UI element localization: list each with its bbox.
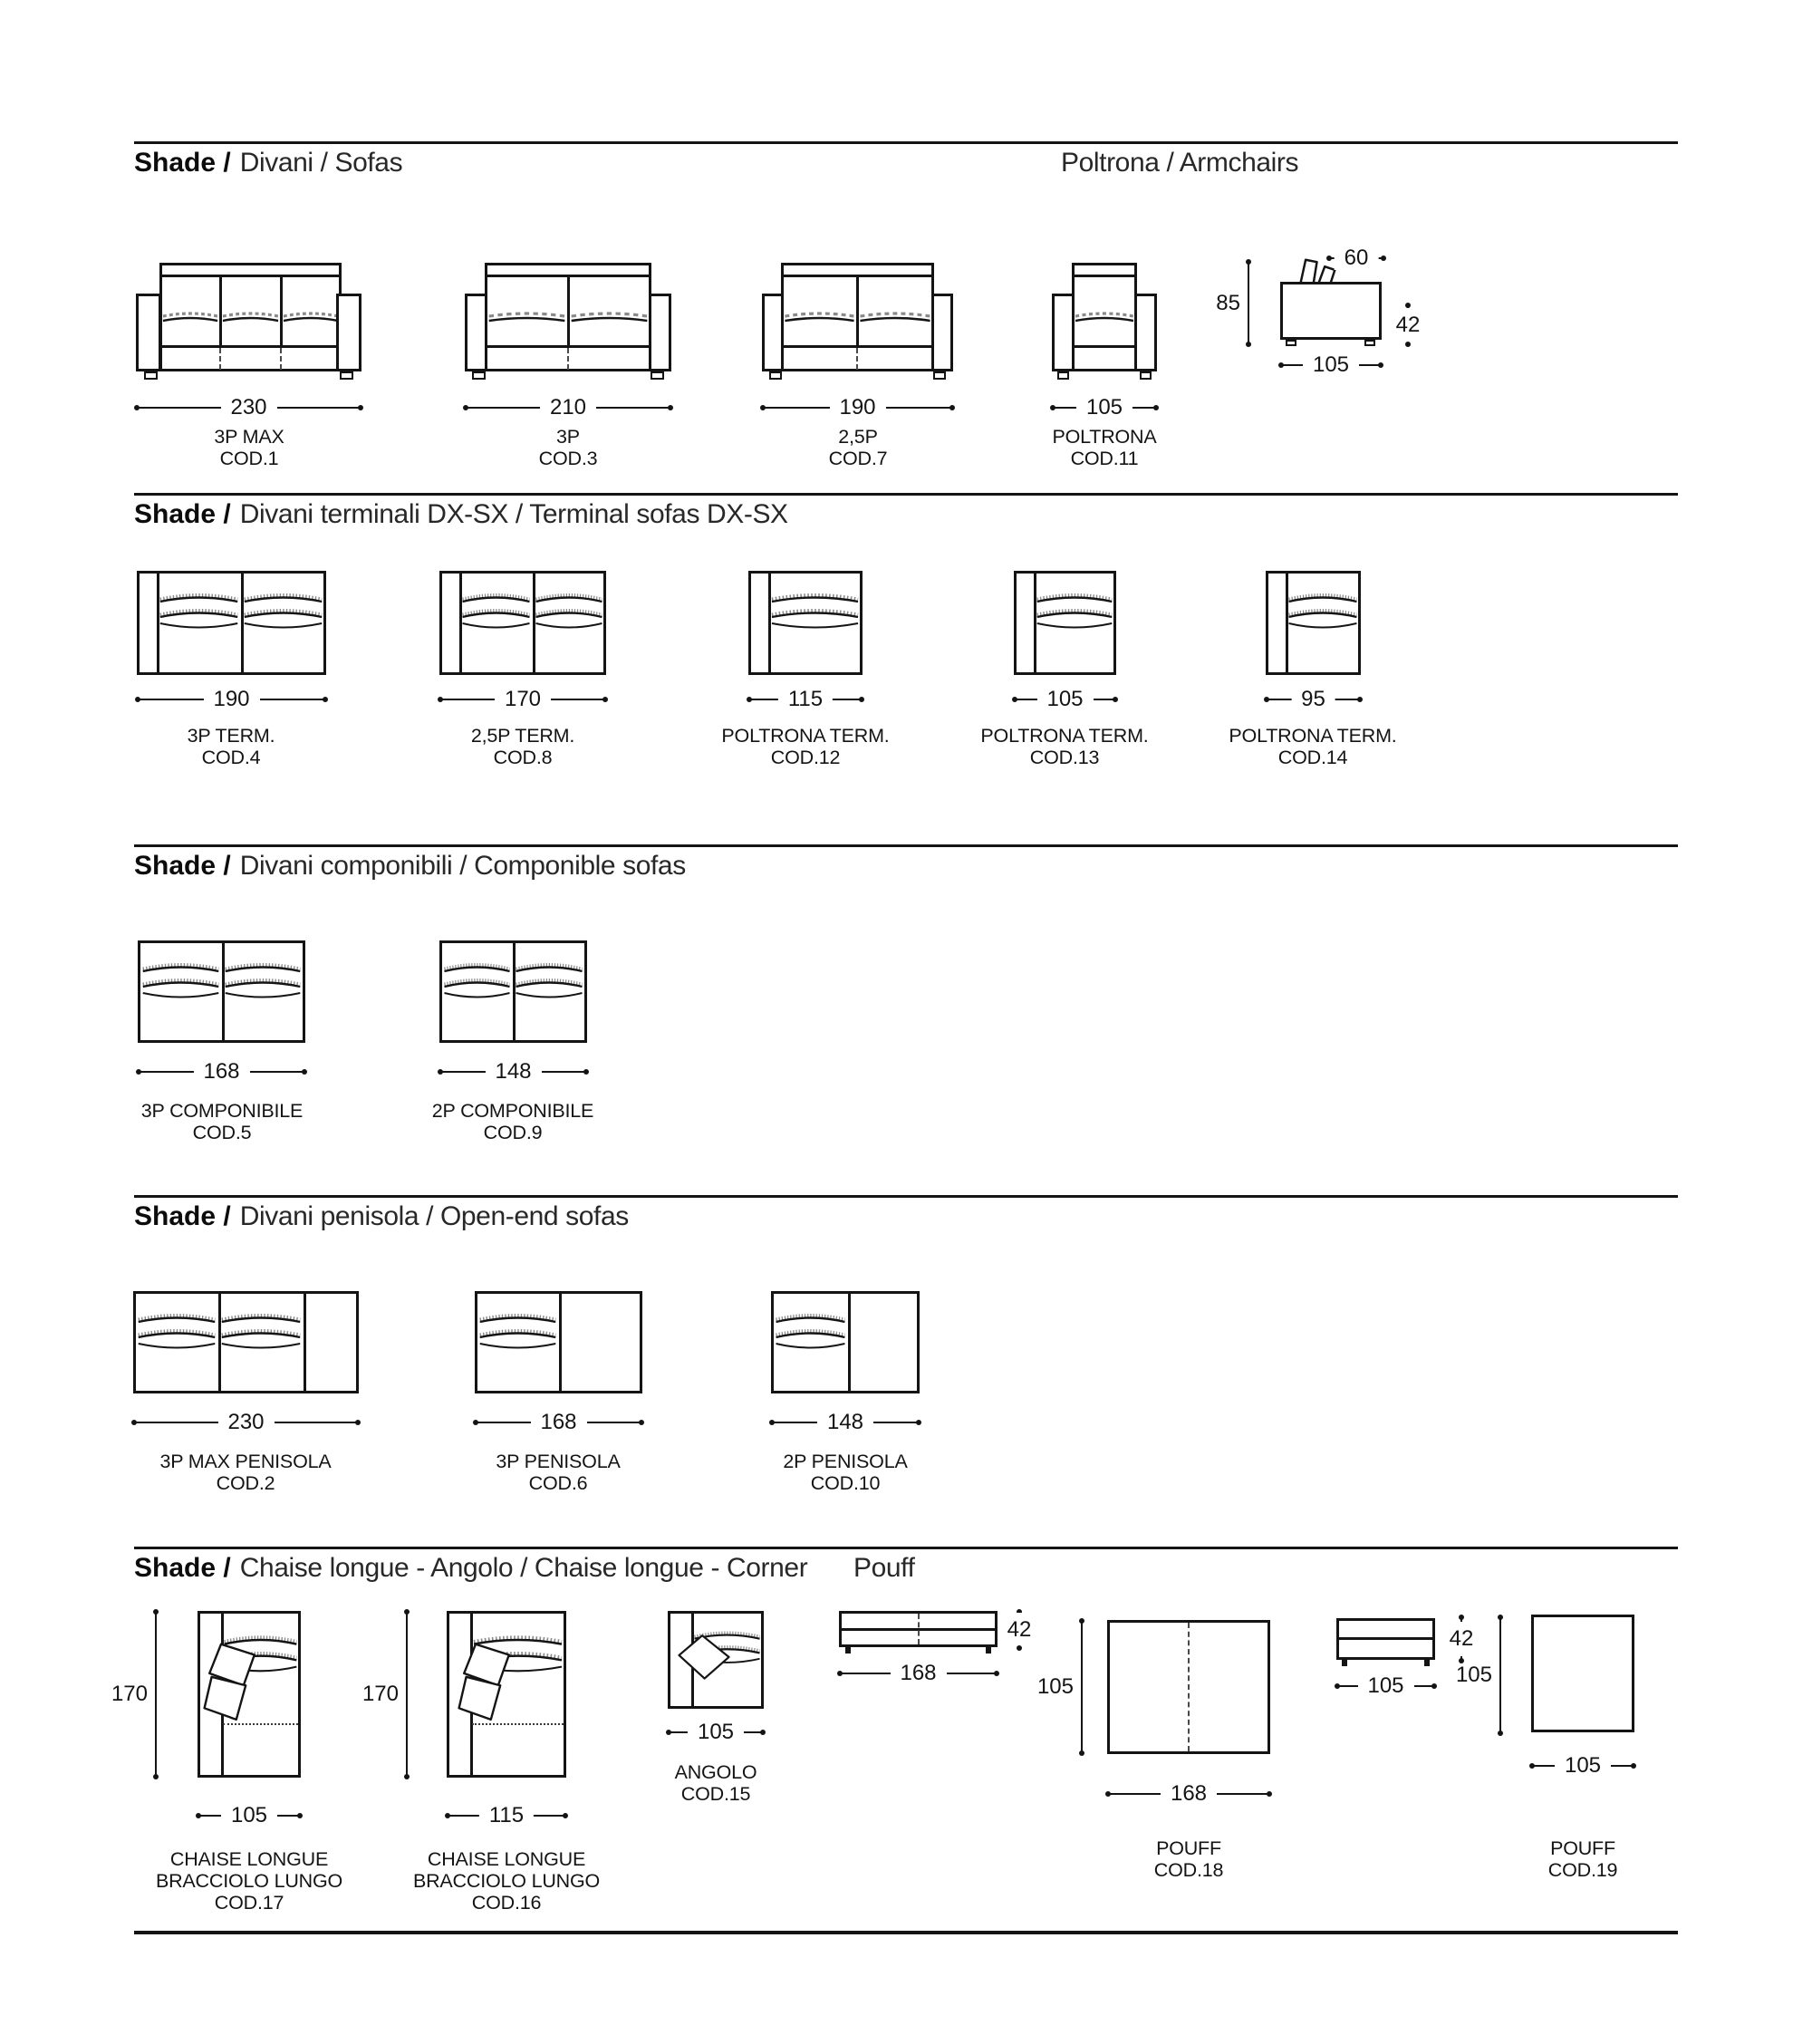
drawing-cod18-side <box>839 1611 998 1654</box>
backrest-cushions <box>775 1307 846 1353</box>
product-name: POUFF <box>1456 1837 1710 1859</box>
dim-width-cod19-top: 105 <box>1531 1765 1634 1767</box>
product-label-cod14: POLTRONA TERM. COD.14 <box>1186 725 1440 768</box>
dim-value: 42 <box>1006 1613 1034 1647</box>
product-label-cod8: 2,5P TERM. COD.8 <box>396 725 650 768</box>
seat-cushion-line <box>858 308 932 326</box>
product-label-cod12: POLTRONA TERM. COD.12 <box>679 725 932 768</box>
dim-width-cod10: 148 <box>771 1422 920 1423</box>
dim-width-cod11: 105 <box>1052 407 1157 409</box>
sofa-arm-left <box>136 294 161 371</box>
bottom-divider <box>134 1931 1678 1934</box>
plinth-dash <box>856 348 858 370</box>
backrest-cushions <box>159 587 239 632</box>
dim-value: 115 <box>778 688 833 711</box>
dim-value: 105 <box>1555 1754 1611 1778</box>
product-code: COD.18 <box>1062 1859 1316 1881</box>
dim-value: 170 <box>111 1682 148 1706</box>
drawing-cod5-top <box>138 940 305 1043</box>
dim-total-height: 85 <box>1248 261 1249 345</box>
pouf-foot <box>1342 1660 1347 1666</box>
drawing-armchair-side <box>1280 256 1382 347</box>
dim-width-cod7: 190 <box>762 407 953 409</box>
dim-value: 115 <box>479 1804 534 1827</box>
product-label-cod11: POLTRONA COD.11 <box>987 426 1222 469</box>
backrest-cushions <box>535 587 603 632</box>
product-label-cod17: CHAISE LONGUE BRACCIOLO LUNGO COD.17 <box>122 1848 376 1914</box>
armchair-foot <box>1140 371 1152 380</box>
plinth-dash <box>567 348 569 370</box>
product-name: 2P COMPONIBILE <box>386 1100 640 1122</box>
product-name: 3P MAX PENISOLA <box>119 1451 372 1472</box>
product-code: COD.4 <box>104 747 358 768</box>
dim-width-cod5: 168 <box>138 1071 305 1073</box>
dim-back-depth: 60 <box>1328 257 1384 259</box>
section5-divider <box>134 1547 1678 1549</box>
spec-sheet-page: Shade /Divani / Sofas Poltrona / Armchai… <box>0 0 1812 2044</box>
seat-cushion-line <box>161 308 219 326</box>
dim-value: 190 <box>203 688 259 711</box>
product-label-cod7: 2,5P COD.7 <box>740 426 976 469</box>
side-foot <box>1364 340 1375 346</box>
backrest-cushions <box>443 957 511 1002</box>
backrest-cushions <box>1287 587 1358 632</box>
drawing-cod18-top <box>1107 1620 1270 1754</box>
dim-value: 42 <box>1448 1622 1476 1656</box>
product-name: 3P COMPONIBILE <box>95 1100 349 1122</box>
dim-value: 95 <box>1291 688 1335 711</box>
product-code: COD.11 <box>987 448 1222 469</box>
product-code: COD.17 <box>122 1892 376 1914</box>
open-end-divider <box>304 1294 306 1391</box>
plinth-dash <box>219 348 221 370</box>
sofa-arm-right <box>336 294 361 371</box>
product-code: COD.15 <box>589 1783 843 1805</box>
dim-width-cod8: 170 <box>439 699 606 700</box>
product-name: 3P TERM. <box>104 725 358 747</box>
sofa-arm-right <box>931 294 953 371</box>
pillows <box>454 1640 526 1732</box>
backrest-cushions <box>478 1307 557 1353</box>
pouf-side-seam <box>1338 1637 1433 1640</box>
section1-brand: Shade / <box>134 148 231 178</box>
dim-width-cod19-side: 105 <box>1336 1685 1435 1687</box>
dim-value: 168 <box>1161 1782 1217 1806</box>
armchair-arm-left <box>1052 294 1075 371</box>
section4-title: Shade /Divani penisola / Open-end sofas <box>134 1201 629 1232</box>
backrest-cushions <box>770 587 860 632</box>
product-code: COD.2 <box>119 1472 372 1494</box>
dim-width-cod13: 105 <box>1014 699 1116 700</box>
pouf-foot <box>845 1647 851 1654</box>
dim-value: 170 <box>362 1682 399 1706</box>
section5-title: Shade /Chaise longue - Angolo / Chaise l… <box>134 1553 807 1584</box>
dim-value: 170 <box>495 688 551 711</box>
section1-right-title: Poltrona / Armchairs <box>1061 148 1298 178</box>
product-code: COD.6 <box>431 1472 685 1494</box>
section3-brand: Shade / <box>134 851 231 881</box>
dim-value: 105 <box>1076 396 1132 419</box>
pillows <box>199 1640 272 1732</box>
product-name: POLTRONA TERM. <box>1186 725 1440 747</box>
dim-width-cod18-side: 168 <box>839 1673 998 1674</box>
product-label-cod16: CHAISE LONGUE BRACCIOLO LUNGO COD.16 <box>380 1848 633 1914</box>
section2-divider <box>134 493 1678 496</box>
drawing-cod14-top <box>1266 571 1361 675</box>
dim-width-cod3: 210 <box>465 407 671 409</box>
sofa-foot <box>340 371 353 380</box>
product-name2: BRACCIOLO LUNGO <box>380 1870 633 1892</box>
product-code: COD.3 <box>450 448 686 469</box>
dim-width-cod15: 105 <box>668 1731 764 1733</box>
backrest-cushions <box>1036 587 1113 632</box>
dim-value: 190 <box>829 396 885 419</box>
product-name: ANGOLO <box>589 1761 843 1783</box>
product-code: COD.1 <box>131 448 367 469</box>
dim-width-cod9: 148 <box>439 1071 587 1073</box>
seat-cushion-line <box>282 308 340 326</box>
drawing-cod19-top <box>1531 1615 1634 1732</box>
product-code: COD.14 <box>1186 747 1440 768</box>
section4-divider <box>134 1195 1678 1198</box>
seat-front-line <box>161 345 340 348</box>
dim-value: 105 <box>1456 1663 1492 1687</box>
seat-cushion-line <box>487 308 567 326</box>
product-name2: BRACCIOLO LUNGO <box>122 1870 376 1892</box>
product-name: 2,5P TERM. <box>396 725 650 747</box>
section2-title: Shade /Divani terminali DX-SX / Terminal… <box>134 499 788 530</box>
product-name: POLTRONA <box>987 426 1222 448</box>
pouf-foot <box>1424 1660 1430 1666</box>
product-label-cod9: 2P COMPONIBILE COD.9 <box>386 1100 640 1143</box>
product-code: COD.12 <box>679 747 932 768</box>
dim-width-cod16: 115 <box>447 1815 566 1817</box>
dim-value: 148 <box>817 1411 873 1434</box>
seat-cushion-line <box>221 308 280 326</box>
product-name: 3P MAX <box>131 426 367 448</box>
backrest-cushions <box>461 587 531 632</box>
product-label-cod4: 3P TERM. COD.4 <box>104 725 358 768</box>
product-code: COD.13 <box>938 747 1191 768</box>
product-name: CHAISE LONGUE <box>380 1848 633 1870</box>
dim-value: 42 <box>1394 308 1422 342</box>
product-name: CHAISE LONGUE <box>122 1848 376 1870</box>
dim-value: 105 <box>221 1804 277 1827</box>
section3-title: Shade /Divani componibili / Componible s… <box>134 851 686 882</box>
section4-subtitle: Divani penisola / Open-end sofas <box>240 1201 629 1231</box>
sofa-arm-left <box>762 294 784 371</box>
sofa-foot <box>651 371 664 380</box>
backrest-cushions <box>515 957 583 1002</box>
sofa-foot <box>472 371 486 380</box>
sofa-foot <box>144 371 158 380</box>
dim-value: 230 <box>217 1411 274 1434</box>
product-code: COD.9 <box>386 1122 640 1143</box>
product-code: COD.5 <box>95 1122 349 1143</box>
dim-value: 168 <box>193 1060 249 1084</box>
dim-value: 105 <box>1037 1675 1074 1699</box>
drawing-cod15-top <box>668 1611 764 1709</box>
dim-value: 105 <box>1036 688 1093 711</box>
section1-title: Shade /Divani / Sofas <box>134 148 402 178</box>
pouf-top-outline <box>1531 1615 1634 1732</box>
section1-subtitle: Divani / Sofas <box>240 148 402 178</box>
drawing-cod7-front <box>762 263 953 380</box>
dim-value: 148 <box>485 1060 541 1084</box>
backrest-cushions <box>220 1307 302 1353</box>
section1-divider <box>134 141 1678 144</box>
drawing-cod19-side <box>1336 1618 1435 1665</box>
drawing-cod1-front <box>136 263 361 380</box>
dim-value: 105 <box>688 1721 744 1744</box>
dim-depth-cod19: 105 <box>1499 1616 1501 1734</box>
open-end-divider <box>848 1294 851 1391</box>
dim-width-cod1: 230 <box>136 407 361 409</box>
drawing-cod4-top <box>137 571 326 675</box>
dim-value: 85 <box>1216 292 1240 315</box>
drawing-cod12-top <box>748 571 863 675</box>
dim-depth-cod18: 105 <box>1081 1620 1083 1754</box>
section2-brand: Shade / <box>134 499 231 529</box>
plinth-dash <box>280 348 282 370</box>
dim-depth: 105 <box>1280 364 1382 366</box>
backrest-cushions <box>141 957 220 1002</box>
product-label-cod13: POLTRONA TERM. COD.13 <box>938 725 1191 768</box>
dim-height-cod19: 42 <box>1460 1616 1462 1662</box>
drawing-cod9-top <box>439 940 587 1043</box>
dim-value: 60 <box>1335 246 1379 270</box>
drawing-cod3-front <box>465 263 671 380</box>
product-name: POUFF <box>1062 1837 1316 1859</box>
product-label-cod19: POUFF COD.19 <box>1456 1837 1710 1881</box>
product-name: 2,5P <box>740 426 976 448</box>
product-label-cod1: 3P MAX COD.1 <box>131 426 367 469</box>
seat-cushion-line <box>1074 308 1135 326</box>
dim-value: 168 <box>890 1662 946 1685</box>
section5-right-title: Pouff <box>853 1553 915 1584</box>
backrest-cushions <box>224 957 302 1002</box>
dim-value: 105 <box>1303 353 1359 377</box>
side-body <box>1280 282 1382 340</box>
dim-value: 168 <box>530 1411 586 1434</box>
backrest-line <box>161 275 340 277</box>
dim-width-cod14: 95 <box>1266 699 1361 700</box>
product-name: 3P PENISOLA <box>431 1451 685 1472</box>
sofa-foot <box>769 371 782 380</box>
seat-cushion-line <box>783 308 856 326</box>
dim-seat-height: 42 <box>1407 304 1409 345</box>
dim-value: 210 <box>540 396 596 419</box>
product-label-cod10: 2P PENISOLA COD.10 <box>718 1451 972 1494</box>
seat-cushion-line <box>569 308 650 326</box>
section3-subtitle: Divani componibili / Componible sofas <box>240 851 686 881</box>
drawing-cod16-top <box>447 1611 566 1778</box>
drawing-cod13-top <box>1014 571 1116 675</box>
section4-brand: Shade / <box>134 1201 231 1231</box>
dim-width-cod18-top: 168 <box>1107 1793 1270 1795</box>
drawing-cod6-top <box>475 1291 642 1393</box>
backrest-cushions <box>137 1307 217 1353</box>
dim-value: 230 <box>220 396 276 419</box>
drawing-cod17-top <box>198 1611 301 1778</box>
dim-depth-cod16: 170 <box>406 1611 408 1778</box>
product-label-cod18: POUFF COD.18 <box>1062 1837 1316 1881</box>
pillow <box>675 1633 733 1691</box>
dim-width-cod17: 105 <box>198 1815 301 1817</box>
product-label-cod5: 3P COMPONIBILE COD.5 <box>95 1100 349 1143</box>
sofa-arm-left <box>465 294 487 371</box>
backrest-cushions <box>243 587 323 632</box>
drawing-cod2-top <box>133 1291 359 1393</box>
pouf-foot <box>986 1647 991 1654</box>
drawing-cod8-top <box>439 571 606 675</box>
product-label-cod2: 3P MAX PENISOLA COD.2 <box>119 1451 372 1494</box>
product-code: COD.19 <box>1456 1859 1710 1881</box>
product-label-cod15: ANGOLO COD.15 <box>589 1761 843 1805</box>
product-name: 2P PENISOLA <box>718 1451 972 1472</box>
product-code: COD.16 <box>380 1892 633 1914</box>
section5-subtitle: Chaise longue - Angolo / Chaise longue -… <box>240 1553 808 1583</box>
product-name: 3P <box>450 426 686 448</box>
armchair-foot <box>1057 371 1069 380</box>
pouf-center-dash <box>1188 1623 1190 1751</box>
product-code: COD.8 <box>396 747 650 768</box>
side-foot <box>1286 340 1296 346</box>
section2-subtitle: Divani terminali DX-SX / Terminal sofas … <box>240 499 788 529</box>
dim-depth-cod17: 170 <box>155 1611 157 1778</box>
dim-width-cod6: 168 <box>475 1422 642 1423</box>
product-label-cod3: 3P COD.3 <box>450 426 686 469</box>
sofa-arm-right <box>649 294 671 371</box>
sofa-foot <box>933 371 946 380</box>
product-code: COD.7 <box>740 448 976 469</box>
dim-width-cod2: 230 <box>133 1422 359 1423</box>
product-name: POLTRONA TERM. <box>938 725 1191 747</box>
dim-width-cod4: 190 <box>137 699 326 700</box>
product-name: POLTRONA TERM. <box>679 725 932 747</box>
backrest-line <box>1074 275 1135 277</box>
product-label-cod6: 3P PENISOLA COD.6 <box>431 1451 685 1494</box>
drawing-cod10-top <box>771 1291 920 1393</box>
dim-width-cod12: 115 <box>748 699 863 700</box>
armchair-arm-right <box>1134 294 1157 371</box>
pouf-center-dash <box>918 1614 920 1644</box>
product-code: COD.10 <box>718 1472 972 1494</box>
open-end-divider <box>559 1294 562 1391</box>
dim-value: 105 <box>1357 1674 1413 1698</box>
seat-front-line <box>1074 345 1135 348</box>
section3-divider <box>134 844 1678 847</box>
dim-height-cod18: 42 <box>1018 1611 1020 1649</box>
section5-brand: Shade / <box>134 1553 231 1583</box>
drawing-cod11-front <box>1052 263 1157 380</box>
